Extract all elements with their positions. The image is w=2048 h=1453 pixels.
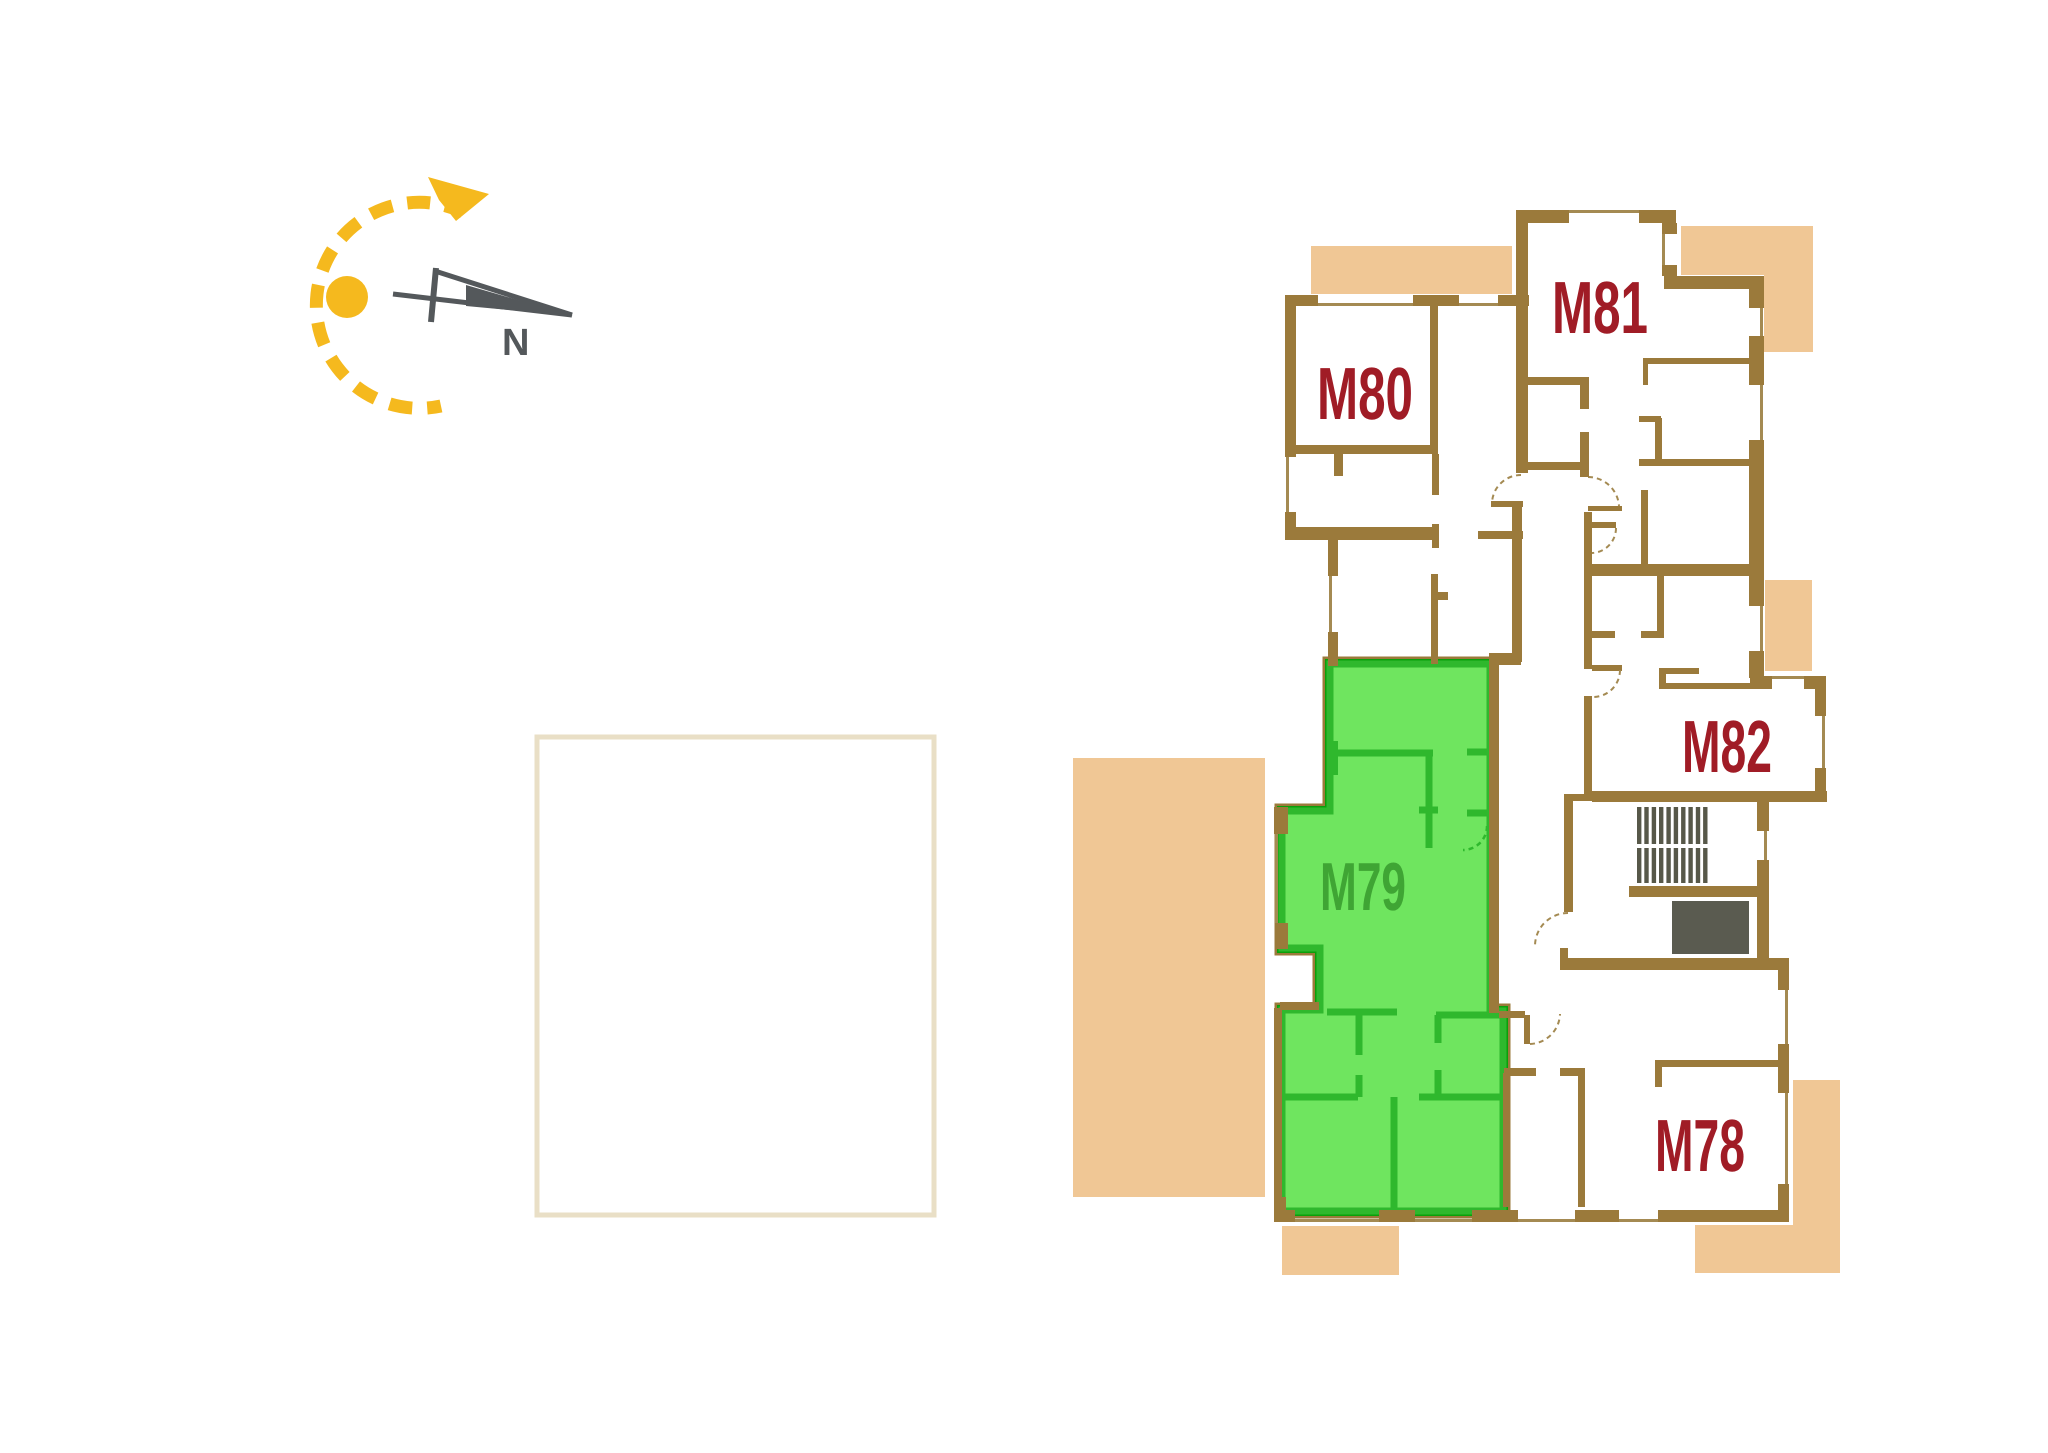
svg-text:M78: M78: [1655, 1104, 1745, 1187]
svg-text:M81: M81: [1552, 266, 1648, 349]
svg-text:N: N: [502, 322, 529, 364]
svg-text:M82: M82: [1682, 705, 1772, 788]
svg-text:M79: M79: [1320, 849, 1406, 925]
svg-text:M80: M80: [1317, 352, 1413, 435]
